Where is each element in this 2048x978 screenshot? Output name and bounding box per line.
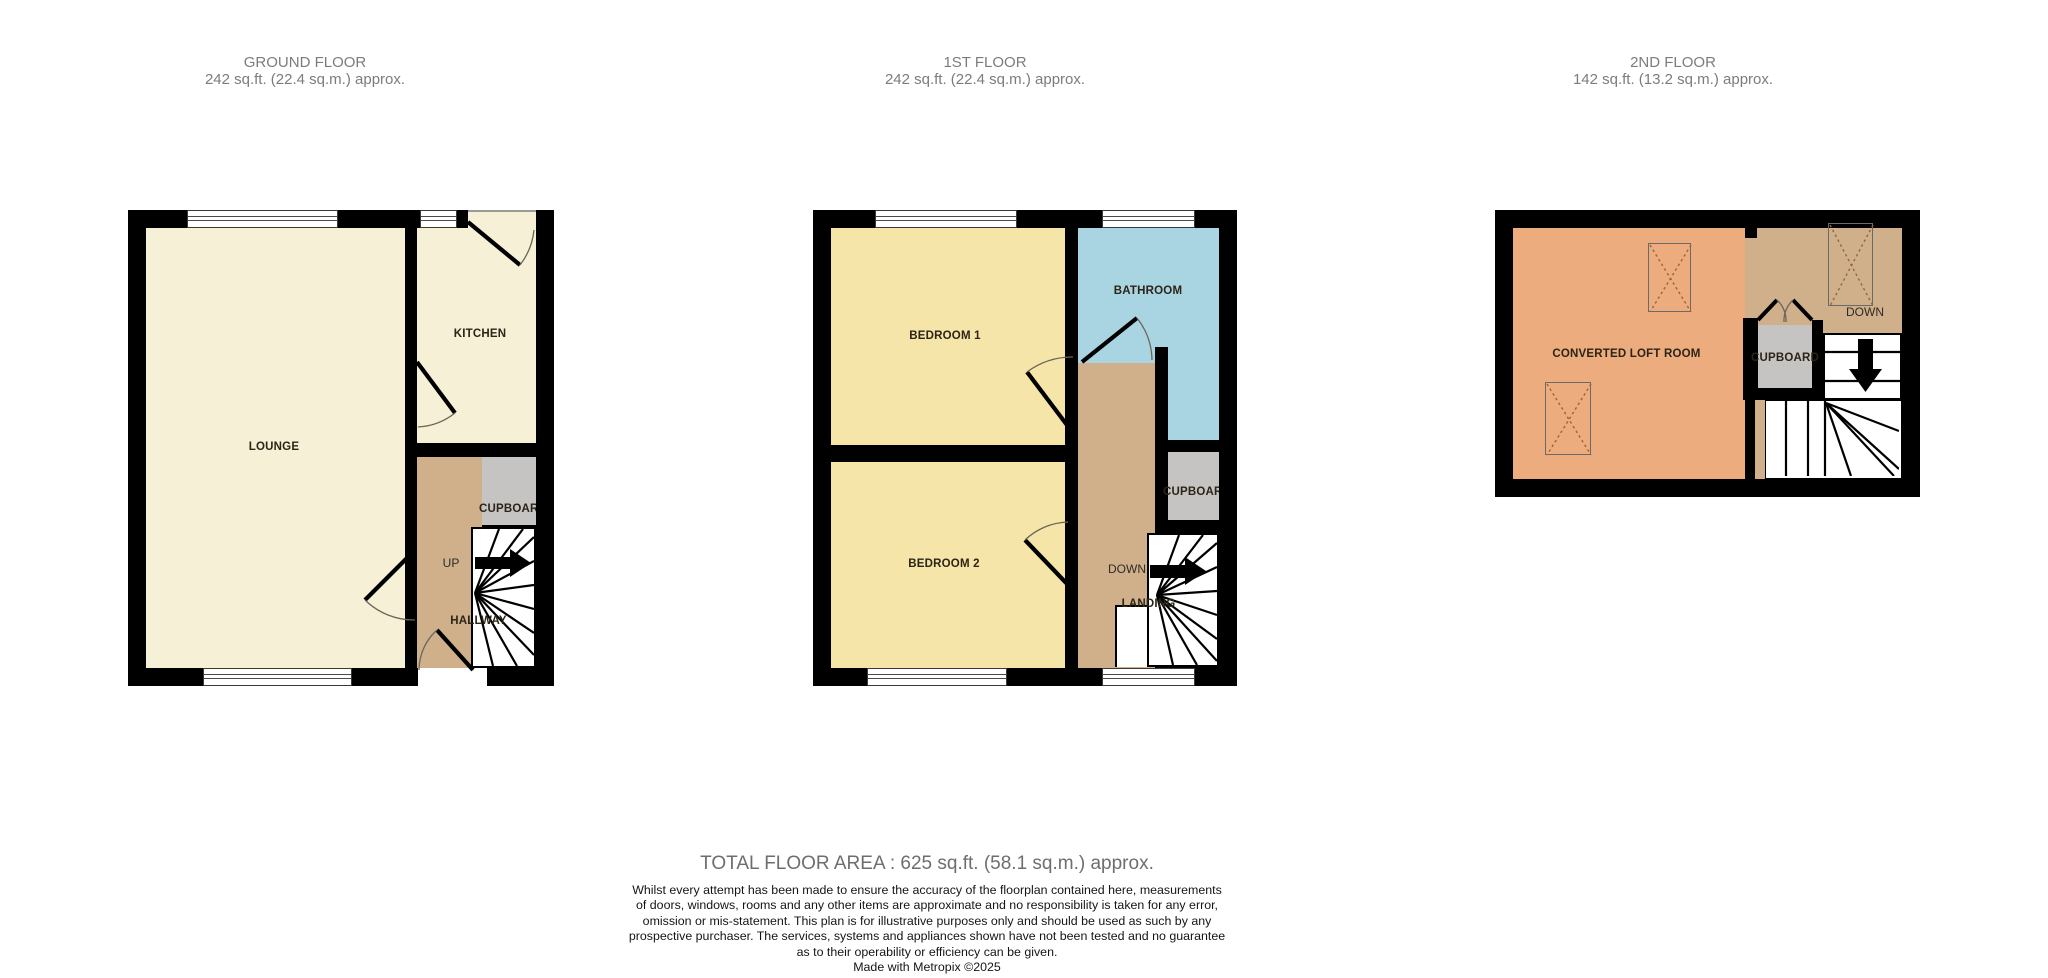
- staircase-straight-down: [1823, 333, 1902, 400]
- wall: [831, 445, 1078, 462]
- ground-floor-title-line: GROUND FLOOR: [145, 54, 465, 71]
- window-pane-line: [868, 678, 1006, 679]
- up-arrow-icon: [475, 549, 531, 577]
- ground-floor-title: GROUND FLOOR 242 sq.ft. (22.4 sq.m.) app…: [145, 54, 465, 88]
- wall: [1168, 440, 1219, 452]
- skylight-cross-icon: [1829, 224, 1874, 307]
- front-door-opening: [418, 668, 487, 686]
- lounge-label: LOUNGE: [204, 441, 344, 453]
- window: [203, 668, 352, 686]
- staircase-winder: [1765, 400, 1902, 479]
- wall: [1155, 520, 1219, 533]
- first-floor-title-line: 1ST FLOOR: [825, 54, 1145, 71]
- second-floor-plan: CONVERTED LOFT ROOM CUPBOARD DOWN: [1495, 210, 1920, 497]
- window-pane-line: [876, 216, 1016, 217]
- wall: [405, 433, 417, 548]
- loft-room-label: CONVERTED LOFT ROOM: [1516, 348, 1737, 360]
- disclaimer-line: as to their operability or efficiency ca…: [527, 945, 1327, 960]
- staircase-fan: [473, 529, 534, 666]
- kitchen-label: KITCHEN: [420, 328, 540, 340]
- cupboard-label: CUPBOARD: [1735, 352, 1835, 364]
- skylight-cross-icon: [1649, 244, 1692, 313]
- skylight-window: [1828, 223, 1873, 306]
- kitchen-room: [417, 228, 536, 457]
- window-pane-line: [188, 216, 337, 217]
- bedroom2-label: BEDROOM 2: [874, 558, 1014, 570]
- window-pane-line: [204, 678, 351, 679]
- window: [875, 210, 1017, 228]
- skylight-cross-icon: [1546, 383, 1592, 456]
- second-floor-title-line: 2ND FLOOR: [1513, 54, 1833, 71]
- disclaimer-line: Whilst every attempt has been made to en…: [527, 883, 1327, 898]
- bedroom1-label: BEDROOM 1: [875, 330, 1015, 342]
- loft-landing-strip: [1755, 400, 1765, 479]
- disclaimer-line: omission or mis-statement. This plan is …: [527, 914, 1327, 929]
- first-floor-plan: BEDROOM 1 BATHROOM BEDROOM 2 CUPBOARD DO…: [813, 210, 1237, 686]
- window: [1102, 668, 1195, 686]
- staircase-treads: [1825, 335, 1900, 398]
- back-door-opening: [468, 210, 536, 228]
- skylight-window: [1545, 382, 1591, 455]
- wall: [1743, 388, 1823, 400]
- disclaimer-line: prospective purchaser. The services, sys…: [527, 929, 1327, 944]
- window-pane-line: [1103, 674, 1194, 675]
- second-floor-area: 142 sq.ft. (13.2 sq.m.) approx.: [1513, 71, 1833, 88]
- window: [420, 210, 457, 228]
- wall: [405, 620, 417, 668]
- ground-floor-area: 242 sq.ft. (22.4 sq.m.) approx.: [145, 71, 465, 88]
- wall: [1065, 602, 1078, 668]
- total-floor-area: TOTAL FLOOR AREA : 625 sq.ft. (58.1 sq.m…: [527, 853, 1327, 875]
- ground-floor-plan: LOUNGE KITCHEN CUPBOARD UP HALLWAY: [128, 210, 554, 686]
- stair-treads: [475, 529, 534, 666]
- window: [1102, 210, 1195, 228]
- skylight-window: [1648, 243, 1691, 312]
- hallway-label: HALLWAY: [418, 615, 539, 627]
- window: [187, 210, 338, 228]
- cupboard-label: CUPBOARD: [1163, 486, 1219, 500]
- window-pane-line: [421, 220, 456, 221]
- window-pane-line: [421, 216, 456, 217]
- down-label: DOWN: [1835, 305, 1895, 319]
- disclaimer-line: of doors, windows, rooms and any other i…: [527, 898, 1327, 913]
- first-floor-title: 1ST FLOOR 242 sq.ft. (22.4 sq.m.) approx…: [825, 54, 1145, 88]
- window-pane-line: [188, 220, 337, 221]
- down-arrow-icon: [1150, 557, 1206, 585]
- wall: [405, 228, 417, 360]
- down-label: DOWN: [1097, 562, 1157, 576]
- window: [867, 668, 1007, 686]
- made-with-credit: Made with Metropix ©2025: [527, 960, 1327, 975]
- floorplan-page: GROUND FLOOR 242 sq.ft. (22.4 sq.m.) app…: [0, 0, 2048, 978]
- bathroom-label: BATHROOM: [1088, 285, 1208, 297]
- landing-label: LANDING: [1088, 598, 1209, 610]
- disclaimer: Whilst every attempt has been made to en…: [527, 883, 1327, 975]
- up-label: UP: [431, 556, 471, 570]
- first-floor-area: 242 sq.ft. (22.4 sq.m.) approx.: [825, 71, 1145, 88]
- wall: [1745, 228, 1757, 238]
- window-pane-line: [1103, 220, 1194, 221]
- staircase-fan: [1766, 401, 1899, 476]
- wall: [1065, 228, 1078, 363]
- understairs-area: [1115, 605, 1147, 667]
- wall: [1155, 347, 1168, 533]
- window-pane-line: [1103, 678, 1194, 679]
- down-arrow-icon: [1849, 339, 1882, 392]
- window-pane-line: [868, 674, 1006, 675]
- window-pane-line: [204, 674, 351, 675]
- second-floor-title: 2ND FLOOR 142 sq.ft. (13.2 sq.m.) approx…: [1513, 54, 1833, 88]
- staircase-up: [471, 527, 536, 668]
- wall: [417, 443, 536, 457]
- window-pane-line: [876, 220, 1016, 221]
- window-pane-line: [1103, 216, 1194, 217]
- cupboard-label: CUPBOARD: [479, 503, 536, 517]
